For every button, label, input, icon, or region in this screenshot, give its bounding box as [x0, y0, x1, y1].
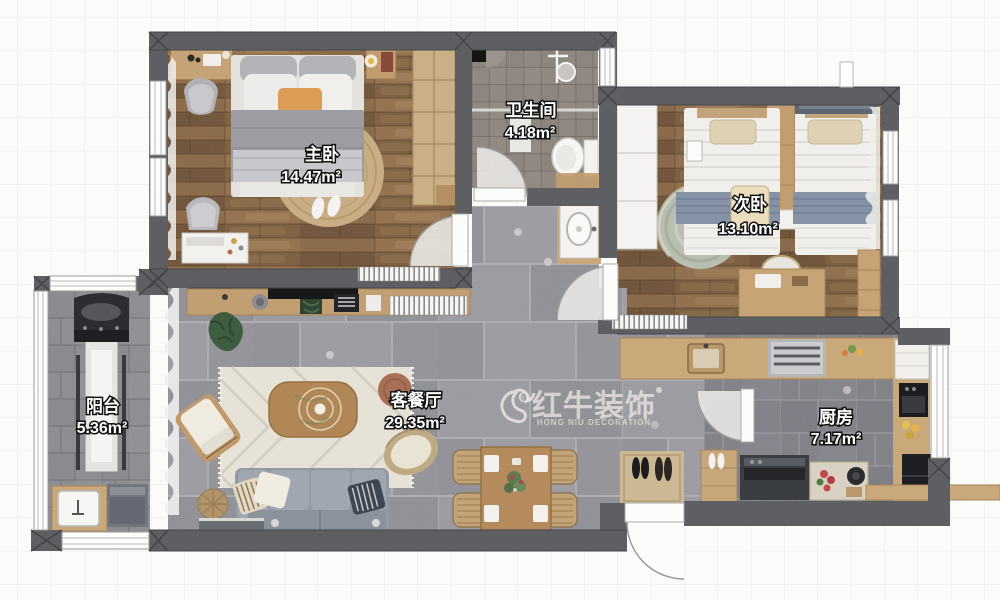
svg-text:13.10m²: 13.10m² [718, 221, 778, 238]
svg-text:4.18m²: 4.18m² [505, 125, 556, 142]
svg-text:客餐厅: 客餐厅 [390, 390, 442, 410]
svg-text:次卧: 次卧 [733, 194, 767, 214]
svg-text:5.36m²: 5.36m² [77, 420, 128, 437]
svg-text:HONG NIU DECORATION: HONG NIU DECORATION [537, 418, 651, 427]
svg-text:阳台: 阳台 [86, 396, 120, 416]
svg-text:14.47m²: 14.47m² [281, 169, 341, 186]
svg-text:厨房: 厨房 [819, 407, 853, 427]
svg-text:29.35m²: 29.35m² [385, 415, 445, 432]
svg-text:R: R [520, 396, 525, 402]
svg-text:主卧: 主卧 [305, 144, 339, 164]
svg-text:卫生间: 卫生间 [506, 100, 557, 120]
svg-text:7.17m²: 7.17m² [811, 431, 862, 448]
